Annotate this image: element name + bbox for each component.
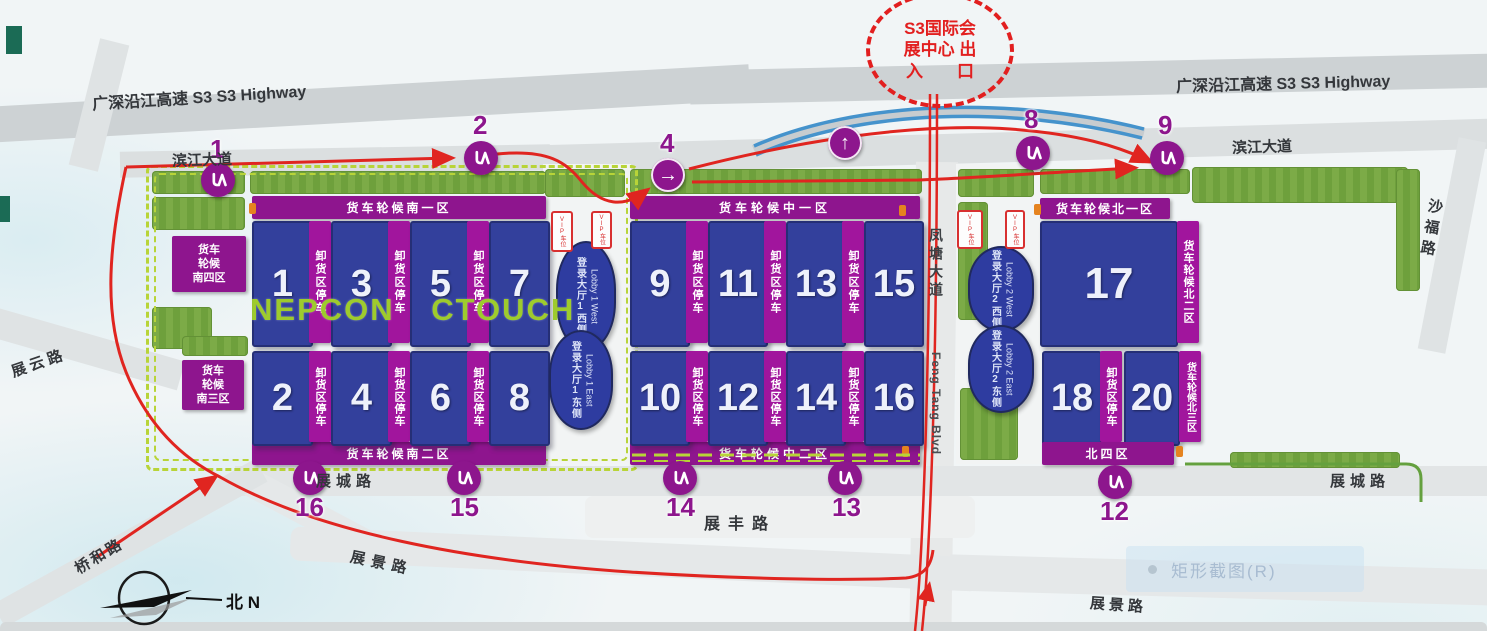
banner-end-marker — [249, 203, 256, 214]
lobby-1-east: 登录大厅1东侧 Lobby 1 East — [549, 330, 613, 430]
lobby-label-en: Lobby 2 East — [1005, 343, 1015, 396]
metro-marker-13 — [828, 461, 862, 495]
banner-south-1: 货车轮候南一区 — [252, 196, 546, 219]
hall-12: 12 — [708, 351, 768, 446]
road-label-zhanfeng: 展丰路 — [704, 510, 776, 534]
lobby-label-cn: 登录大厅1东侧 — [568, 341, 583, 419]
road-label-fengtang-cn: 凤塘大道 — [926, 228, 946, 300]
metro-logo-icon — [835, 468, 855, 488]
road-label-highway-right: 广深沿江高速 S3 S3 Highway — [1176, 67, 1391, 97]
lawn — [958, 169, 1034, 197]
screenshot-tool-tooltip: 矩形截图(R) — [1126, 546, 1364, 592]
box-truck-south-4: 货车 轮候 南四区 — [172, 236, 246, 292]
marker-number: 15 — [450, 492, 479, 523]
lawn — [1230, 452, 1400, 468]
lawn — [1396, 169, 1420, 291]
hall-18: 18 — [1042, 351, 1102, 446]
metro-marker-2 — [464, 141, 498, 175]
road-zhanfeng — [585, 496, 975, 538]
hall-15: 15 — [864, 221, 924, 347]
hall-14: 14 — [786, 351, 846, 446]
metro-logo-icon — [1157, 148, 1177, 168]
marker-number: 8 — [1024, 104, 1038, 135]
unload-strip: 卸货区停车 — [842, 221, 864, 343]
box-line: 南三区 — [197, 392, 230, 406]
unload-strip: 卸货区停车 — [842, 351, 864, 442]
lobby-label-en: Lobby 2 West — [1005, 262, 1015, 317]
vip-parking-box: VIP车位 — [957, 210, 983, 249]
teal-block — [0, 196, 10, 222]
lobby-label-cn: 登录大厅2东侧 — [988, 330, 1003, 408]
unload-strip: 卸货区停车 — [388, 351, 410, 442]
metro-logo-icon — [454, 468, 474, 488]
banner-end-marker — [899, 205, 906, 216]
lobby-label-en: Lobby 1 West — [590, 269, 600, 324]
banner-end-marker — [1176, 446, 1183, 457]
marker-number: 12 — [1100, 496, 1129, 527]
metro-logo-icon — [670, 468, 690, 488]
hall-1: 1 — [252, 221, 313, 347]
entrance-up-arrow-marker: ↑ — [828, 126, 862, 160]
compass-label: 北 N — [226, 588, 260, 613]
metro-marker-14 — [663, 461, 697, 495]
marker-number: 13 — [832, 492, 861, 523]
hall-9: 9 — [630, 221, 690, 347]
metro-marker-15 — [447, 461, 481, 495]
unload-strip: 卸货区停车 — [1100, 351, 1122, 442]
banner-north-4: 北四区 — [1042, 442, 1174, 465]
s3-line: 展中心 出 — [904, 39, 977, 60]
banner-end-marker — [1034, 204, 1041, 215]
marker-number: 2 — [473, 110, 487, 141]
hall-17: 17 — [1040, 221, 1178, 347]
hall-11: 11 — [708, 221, 768, 347]
road-label-zhancheng-left: 展城路 — [316, 470, 376, 491]
hall-6: 6 — [410, 351, 471, 446]
lobby-2-west: 登录大厅2西侧 Lobby 2 West — [968, 246, 1034, 332]
road-label-fengtang-en: Feng Tang Blvd — [929, 352, 943, 455]
exhibitor-watermark: NEPCON CTOUCH — [250, 292, 575, 328]
marker-number: 16 — [295, 492, 324, 523]
unload-strip: 卸货区停车 — [686, 351, 708, 442]
compass: 北 N — [96, 568, 276, 630]
road-label-zhanjing-right: 展景路 — [1089, 592, 1147, 617]
hall-4: 4 — [331, 351, 392, 446]
metro-logo-icon — [1105, 472, 1125, 492]
lobby-2-east: 登录大厅2东侧 Lobby 2 East — [968, 325, 1034, 413]
tooltip-label: 矩形截图(R) — [1171, 557, 1277, 582]
vip-parking-box: VIP车位 — [591, 211, 612, 249]
unload-strip: 卸货区停车 — [467, 351, 489, 442]
tooltip-dot-icon — [1148, 565, 1157, 574]
road-label-binjiang-right: 滨江大道 — [1232, 135, 1293, 158]
hall-10: 10 — [630, 351, 690, 446]
teal-block — [6, 26, 22, 54]
box-line: 货车 — [202, 364, 224, 378]
hall-7: 7 — [489, 221, 550, 347]
road-label-binjiang-left: 滨江大道 — [172, 148, 233, 171]
marker-number: 4 — [660, 128, 674, 159]
box-line: 南四区 — [193, 271, 226, 285]
box-line: 轮候 — [202, 378, 224, 392]
box-line: 轮候 — [198, 257, 220, 271]
metro-marker-8 — [1016, 136, 1050, 170]
vip-parking-box: VIP车位 — [1005, 210, 1025, 249]
hall-2: 2 — [252, 351, 313, 446]
right-arrow-icon: → — [658, 164, 678, 187]
lawn — [1192, 167, 1408, 203]
hall-5: 5 — [410, 221, 471, 347]
banner-north-1: 货车轮候北一区 — [1040, 198, 1170, 219]
banner-end-marker — [902, 446, 909, 457]
road-label-zhancheng-right: 展城路 — [1330, 470, 1390, 491]
lobby-label-en: Lobby 1 East — [585, 354, 595, 407]
metro-logo-icon — [1023, 143, 1043, 163]
metro-logo-icon — [471, 148, 491, 168]
unload-strip: 卸货区停车 — [764, 221, 786, 343]
s3-line: S3国际会 — [904, 18, 976, 39]
strip-truck-north-2: 货车轮候北二区 — [1177, 221, 1199, 343]
hall-13: 13 — [786, 221, 846, 347]
hall-20: 20 — [1124, 351, 1180, 446]
box-truck-south-3: 货车 轮候 南三区 — [182, 360, 244, 410]
metro-logo-icon — [208, 170, 228, 190]
marker-number: 14 — [666, 492, 695, 523]
up-arrow-icon: ↑ — [840, 132, 850, 155]
unload-strip: 卸货区停车 — [686, 221, 708, 343]
hall-3: 3 — [331, 221, 392, 347]
marker-number: 9 — [1158, 110, 1172, 141]
hall-16: 16 — [864, 351, 924, 446]
box-line: 货车 — [198, 243, 220, 257]
unload-strip: 卸货区停车 — [764, 351, 786, 442]
venue-map: 货车轮候南一区 货车轮候南二区 货车 轮候 南四区 货车 轮候 南三区 1 卸货… — [0, 0, 1487, 631]
lobby-label-cn: 登录大厅2西侧 — [988, 250, 1003, 328]
gate-marker-4: → — [651, 158, 685, 192]
metro-marker-12 — [1098, 465, 1132, 499]
banner-mid-1: 货车轮候中一区 — [630, 196, 920, 219]
vip-parking-box: VIP车位 — [551, 211, 573, 252]
unload-strip: 卸货区停车 — [309, 351, 331, 442]
s3-line: 入 口 — [906, 61, 974, 82]
metro-marker-9 — [1150, 141, 1184, 175]
strip-truck-north-3: 货车轮候北三区 — [1179, 351, 1201, 442]
hall-8: 8 — [489, 351, 550, 446]
